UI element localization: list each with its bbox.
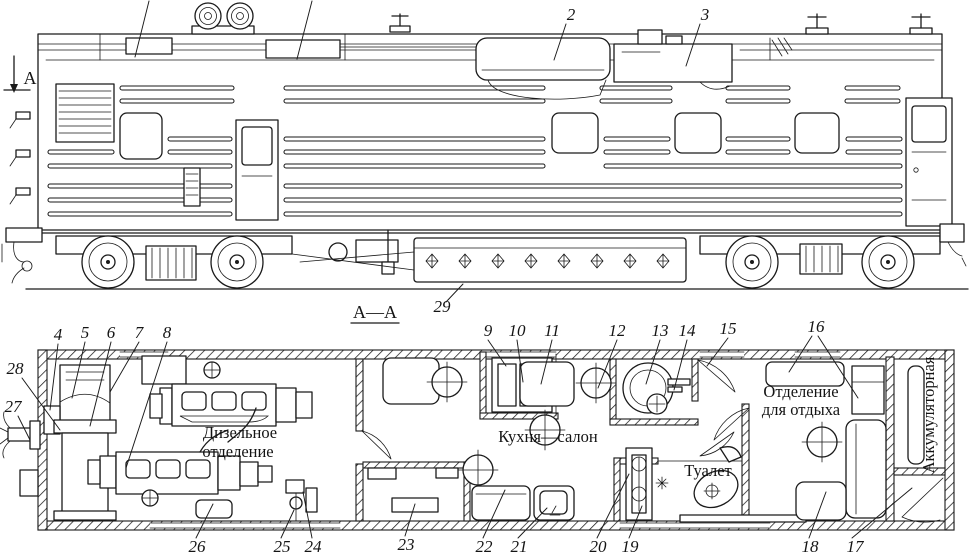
small-louvre-vent [184, 168, 200, 206]
callout-7: 7 [135, 323, 145, 342]
wheel [726, 236, 778, 288]
technical-drawing-figure: А [0, 0, 970, 555]
callout-25: 25 [274, 537, 291, 555]
room-label-diesel-line1: Дизельное [203, 423, 277, 442]
callout-29: 29 [434, 297, 452, 316]
roof-vent [806, 14, 828, 34]
callout-22: 22 [476, 537, 494, 555]
room-label-battery: Аккумуляторная [919, 356, 938, 473]
callout-5: 5 [81, 323, 90, 342]
callout-8: 8 [163, 323, 172, 342]
coupler-front [2, 228, 42, 283]
roof-fan-horns [192, 3, 254, 34]
radiator-louvre-grille [56, 84, 114, 142]
toilet-bowl [688, 447, 745, 515]
roof-box-2 [266, 40, 340, 58]
callout-17: 17 [847, 537, 866, 555]
callout-13: 13 [652, 321, 669, 340]
section-plan-label: А—А [351, 302, 399, 323]
buffer-rear [940, 224, 966, 266]
water-heater [626, 448, 652, 520]
room-label-rest-line2: для отдыха [762, 400, 841, 419]
berth [796, 482, 846, 520]
roof-vent [390, 14, 410, 32]
callout-3: 3 [700, 5, 710, 24]
bogie-right [700, 236, 940, 288]
entry-door-right [906, 98, 952, 226]
callout-14: 14 [679, 321, 697, 340]
wheel [211, 236, 263, 288]
callout-9: 9 [484, 321, 493, 340]
drawing-canvas: А [0, 0, 970, 555]
roof-cooling-unit-3 [614, 30, 732, 89]
valve [656, 477, 668, 489]
room-label-rest-line1: Отделение [763, 382, 838, 401]
toilet-equipment [626, 447, 744, 520]
washstand [623, 363, 690, 414]
callout-10: 10 [509, 321, 527, 340]
callout-19: 19 [622, 537, 640, 555]
side-elevation-view: А [2, 3, 968, 289]
roof-box-1 [126, 38, 172, 54]
callout-2: 2 [567, 5, 576, 24]
room-label-toilet: Туалет [684, 461, 732, 480]
kitchen-sofa [472, 486, 530, 520]
roof-vent [910, 14, 932, 34]
floor-plan-view: Дизельное отделение Кухня—салон Туалет О… [0, 350, 954, 530]
kitchen-table [520, 362, 574, 406]
side-window [795, 113, 839, 153]
side-window [120, 113, 162, 159]
callout-16: 16 [808, 317, 826, 336]
callout-20: 20 [590, 537, 608, 555]
room-label-kitchen: Кухня—салон [498, 427, 598, 446]
side-window [552, 113, 598, 153]
callout-27: 27 [5, 397, 24, 416]
callout-15: 15 [720, 319, 737, 338]
cabinet [852, 366, 884, 414]
section-plan-label-text: А—А [353, 302, 397, 322]
section-cut-label: А [24, 68, 37, 88]
callout-11: 11 [544, 321, 560, 340]
callout-6: 6 [107, 323, 116, 342]
end-steps [10, 112, 30, 204]
callout-12: 12 [609, 321, 627, 340]
wheel [82, 236, 134, 288]
callout-26: 26 [189, 537, 207, 555]
seat-stool [802, 422, 842, 462]
room-label-diesel-line2: отделение [202, 442, 273, 461]
side-window [675, 113, 721, 153]
entry-door-left [236, 120, 278, 220]
callout-23: 23 [398, 535, 415, 554]
callout-18: 18 [802, 537, 820, 555]
fuel-pump-unit [286, 480, 317, 521]
plan-coupler [0, 412, 40, 496]
callout-4: 4 [54, 325, 63, 344]
wheel [862, 236, 914, 288]
callout-28: 28 [7, 359, 25, 378]
callout-24: 24 [305, 537, 323, 555]
section-cut-marker: А [4, 56, 37, 93]
berth [846, 420, 886, 518]
callout-21: 21 [511, 537, 528, 555]
fuel-tank [414, 238, 686, 282]
